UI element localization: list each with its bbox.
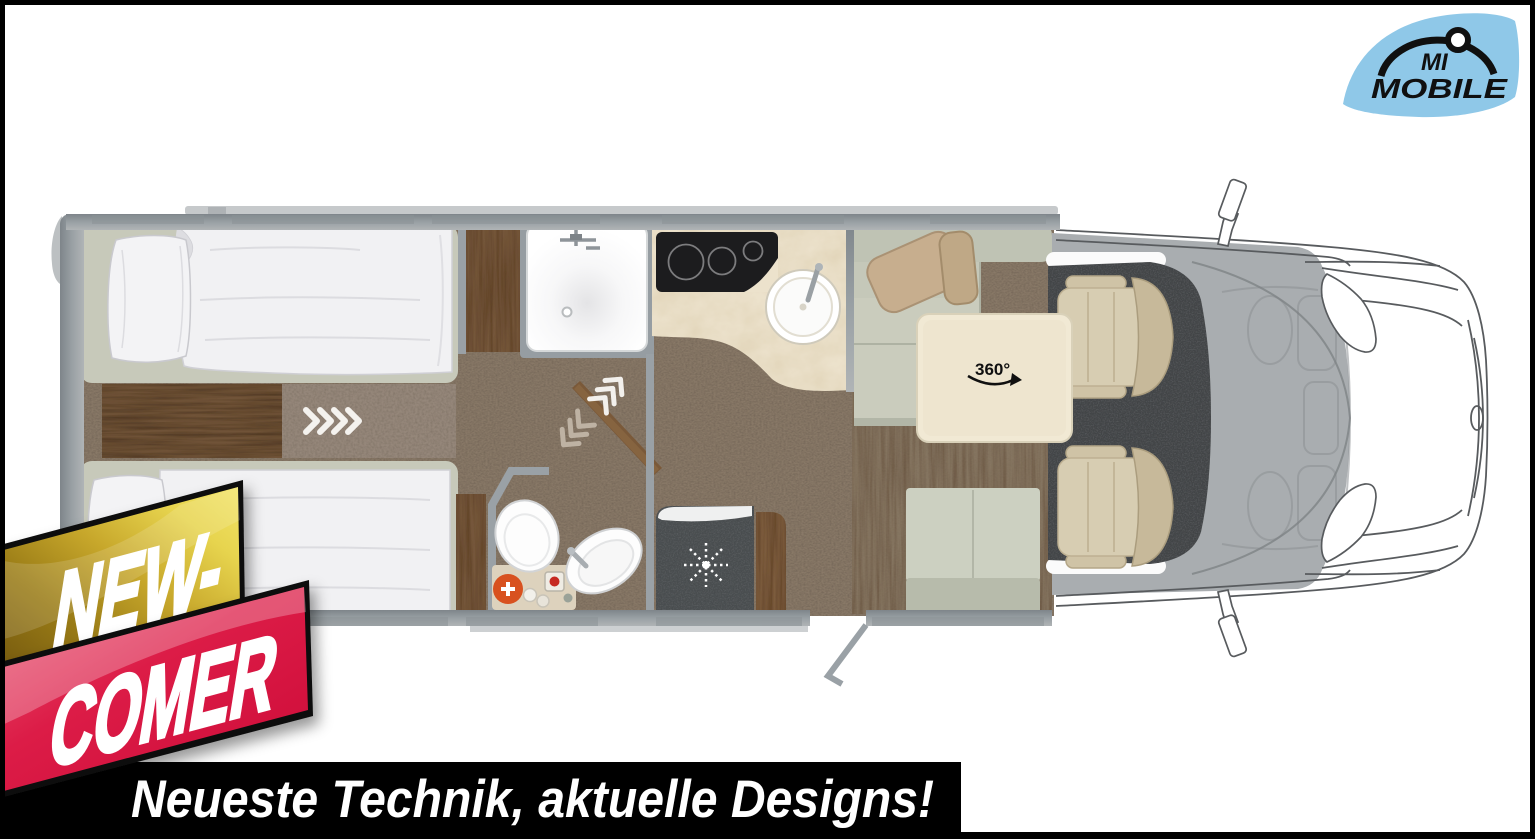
svg-text:Neueste Technik, aktuelle Desi: Neueste Technik, aktuelle Designs!: [131, 770, 934, 829]
svg-text:MI: MI: [1421, 49, 1449, 76]
svg-text:MOBILE: MOBILE: [1371, 73, 1509, 104]
svg-text:360°: 360°: [975, 360, 1010, 379]
